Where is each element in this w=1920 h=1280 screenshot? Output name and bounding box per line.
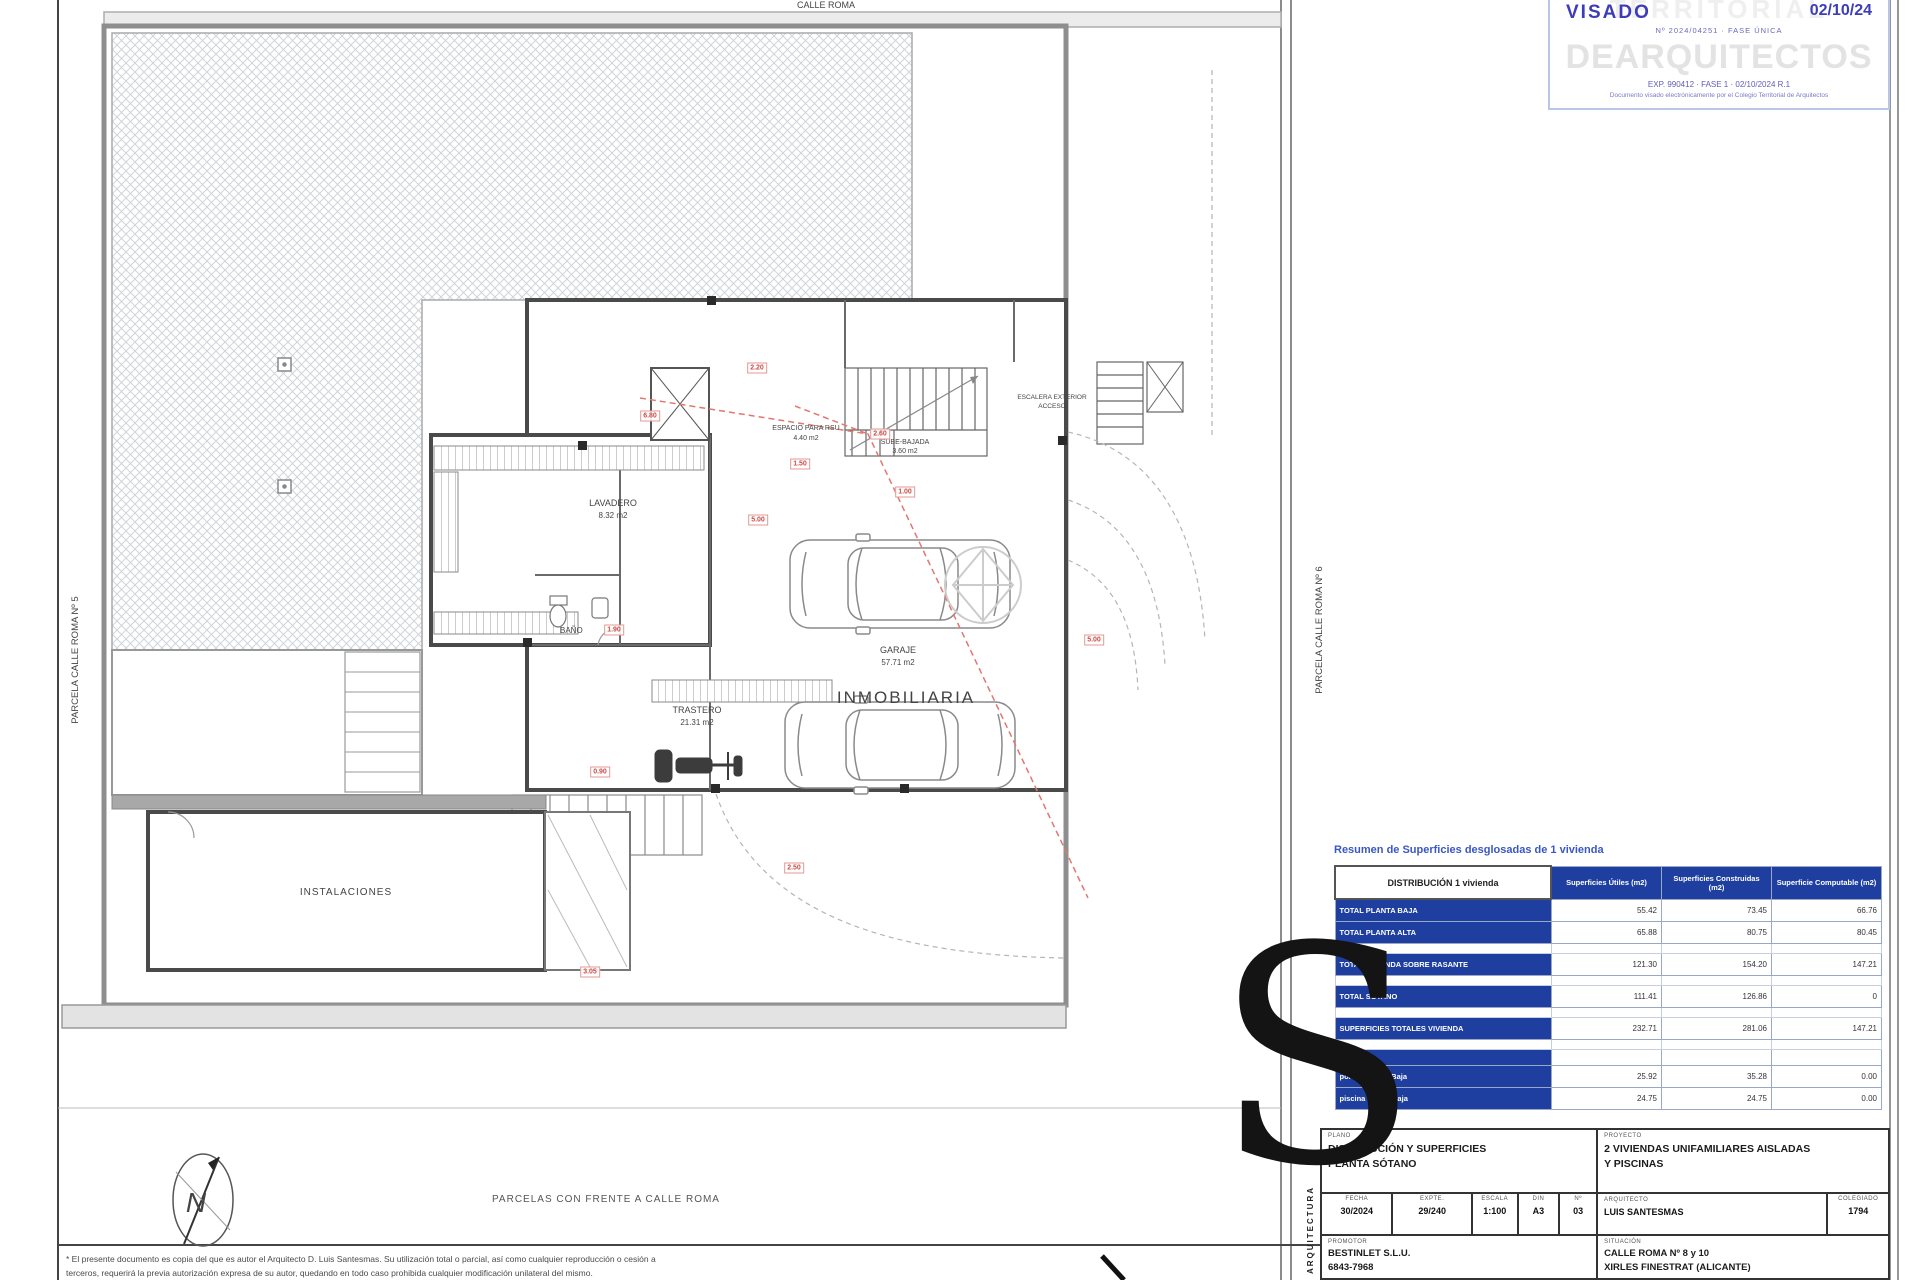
bottom-wall-band xyxy=(62,1005,1066,1028)
summary-row-value: 24.75 xyxy=(1551,1088,1662,1110)
escala-label: ESCALA xyxy=(1473,1196,1517,1202)
visado-row: VISADO 02/10/24 xyxy=(1550,2,1888,24)
garaje-area: 57.71 m2 xyxy=(881,658,915,667)
espacio-label-2: 4.40 m2 xyxy=(793,435,818,442)
din-label: DIN xyxy=(1519,1196,1559,1202)
studio-vertical-text: ARQUITECTURA xyxy=(1306,1186,1315,1274)
patio-strip xyxy=(112,650,422,795)
escala-cell: ESCALA 1:100 xyxy=(1473,1194,1519,1236)
escalera-label-2: 3.60 m2 xyxy=(892,448,917,455)
stairs-exterior xyxy=(1097,362,1183,444)
summary-row-value: 281.06 xyxy=(1662,1018,1772,1040)
summary-col-header: Superficies Construidas (m2) xyxy=(1662,866,1772,899)
promotor-cell: PROMOTOR BESTINLET S.L.U. 6843-7968 xyxy=(1322,1236,1598,1280)
summary-row-value: 55.42 xyxy=(1551,899,1662,922)
arquitecto-cell: ARQUITECTO LUIS SANTESMAS xyxy=(1598,1194,1828,1236)
summary-row-value: 80.45 xyxy=(1772,922,1882,944)
summary-title: Resumen de Superficies desglosadas de 1 … xyxy=(1334,844,1864,856)
visado-stamp: TERRITORIAL DEARQUITECTOS VISADO 02/10/2… xyxy=(1548,0,1890,110)
proyecto-label: PROYECTO xyxy=(1604,1133,1882,1139)
colegiado-value: 1794 xyxy=(1828,1206,1888,1216)
summary-row-value xyxy=(1772,1050,1882,1066)
situacion-line1: CALLE ROMA Nº 8 y 10 xyxy=(1604,1247,1882,1261)
colegiado-label: COLEGIADO xyxy=(1828,1196,1888,1202)
promotor-line1: BESTINLET S.L.U. xyxy=(1328,1247,1590,1261)
proyecto-line2: Y PISCINAS xyxy=(1604,1157,1882,1172)
parcel-right-label: PARCELA CALLE ROMA Nº 6 xyxy=(1314,566,1325,693)
titleblock-proyecto-cell: PROYECTO 2 VIVIENDAS UNIFAMILIARES AISLA… xyxy=(1598,1130,1888,1194)
summary-row-value: 111.41 xyxy=(1551,986,1662,1008)
escalera-ext-label-1: ESCALERA EXTERIOR xyxy=(1017,394,1087,401)
sheet-canvas: CALLE ROMA xyxy=(0,0,1920,1280)
trastero-label: TRASTERO xyxy=(672,705,721,715)
summary-row-value: 0.00 xyxy=(1772,1066,1882,1088)
situacion-cell: SITUACIÓN CALLE ROMA Nº 8 y 10 XIRLES FI… xyxy=(1598,1236,1888,1280)
espacio-label-1: ESPACIO PARA RSU xyxy=(772,425,839,432)
lavadero-label: LAVADERO xyxy=(589,498,637,508)
arquitecto-value: LUIS SANTESMAS xyxy=(1604,1207,1820,1217)
visado-line4: Documento visado electrónicamente por el… xyxy=(1550,92,1888,99)
summary-row-value: 35.28 xyxy=(1662,1066,1772,1088)
situacion-label: SITUACIÓN xyxy=(1604,1239,1882,1245)
summary-row-value: 232.71 xyxy=(1551,1018,1662,1040)
copyright-disclaimer: * El presente documento es copia del que… xyxy=(66,1252,1136,1280)
summary-row-value: 25.92 xyxy=(1551,1066,1662,1088)
instalaciones-label: INSTALACIONES xyxy=(300,887,392,898)
num-value: 03 xyxy=(1560,1206,1596,1216)
summary-row-value: 66.76 xyxy=(1772,899,1882,922)
garaje-label: GARAJE xyxy=(880,645,916,655)
summary-col-header: Superficies Útiles (m2) xyxy=(1551,866,1662,899)
parcel-left-label: PARCELA CALLE ROMA Nº 5 xyxy=(70,596,81,723)
summary-row-value: 0 xyxy=(1772,986,1882,1008)
watermark-emblem xyxy=(945,547,1021,623)
bano-label: BAÑO xyxy=(560,626,583,635)
summary-row-value: 24.75 xyxy=(1662,1088,1772,1110)
north-letter: N xyxy=(186,1187,207,1218)
arquitecto-label: ARQUITECTO xyxy=(1604,1197,1820,1203)
proyecto-line1: 2 VIVIENDAS UNIFAMILIARES AISLADAS xyxy=(1604,1142,1882,1157)
watermark-text: INMOBILIARIA xyxy=(837,688,975,707)
num-label: Nº xyxy=(1560,1196,1596,1202)
summary-col-header: Superficie Computable (m2) xyxy=(1772,866,1882,899)
car-top-2 xyxy=(785,696,1015,794)
summary-row-value: 65.88 xyxy=(1551,922,1662,944)
trastero-area: 21.31 m2 xyxy=(680,718,714,727)
plan-caption: PARCELAS CON FRENTE A CALLE ROMA xyxy=(456,1194,756,1205)
summary-row-value: 121.30 xyxy=(1551,954,1662,976)
promotor-label: PROMOTOR xyxy=(1328,1239,1590,1245)
num-cell: Nº 03 xyxy=(1560,1194,1598,1236)
situacion-line2: XIRLES FINESTRAT (ALICANTE) xyxy=(1604,1261,1882,1275)
summary-row-value xyxy=(1662,1050,1772,1066)
escala-value: 1:100 xyxy=(1473,1206,1517,1216)
visado-date: 02/10/24 xyxy=(1810,2,1872,24)
studio-vertical-name: ARQUITECTURA xyxy=(1293,1128,1319,1280)
summary-row-value: 147.21 xyxy=(1772,1018,1882,1040)
road-label: CALLE ROMA xyxy=(797,0,855,10)
din-value: A3 xyxy=(1519,1206,1559,1216)
disclaimer-line2: terceros, requerirá la previa autorizaci… xyxy=(66,1266,1136,1280)
visado-line3: EXP. 990412 · FASE 1 · 02/10/2024 R.1 xyxy=(1550,80,1888,89)
promotor-line2: 6843-7968 xyxy=(1328,1261,1590,1275)
disclaimer-line1: * El presente documento es copia del que… xyxy=(66,1252,1136,1266)
visado-label: VISADO xyxy=(1566,2,1651,24)
visado-subline: Nº 2024/04251 · FASE ÚNICA xyxy=(1550,26,1888,35)
stamp-watermark-main: DEARQUITECTOS xyxy=(1550,38,1888,77)
summary-row-value: 80.75 xyxy=(1662,922,1772,944)
din-cell: DIN A3 xyxy=(1519,1194,1561,1236)
escalera-label-1: SUBE-BAJADA xyxy=(881,439,930,446)
escalera-ext-label-2: ACCESO xyxy=(1038,403,1065,410)
summary-row-value: 147.21 xyxy=(1772,954,1882,976)
retaining-band xyxy=(112,795,546,809)
colegiado-cell: COLEGIADO 1794 xyxy=(1828,1194,1888,1236)
summary-row-value: 0.00 xyxy=(1772,1088,1882,1110)
summary-row-value: 154.20 xyxy=(1662,954,1772,976)
summary-row-value xyxy=(1551,1050,1662,1066)
summary-row-value: 126.86 xyxy=(1662,986,1772,1008)
north-compass: N xyxy=(173,1154,233,1246)
lavadero-area: 8.32 m2 xyxy=(599,511,628,520)
summary-row-value: 73.45 xyxy=(1662,899,1772,922)
